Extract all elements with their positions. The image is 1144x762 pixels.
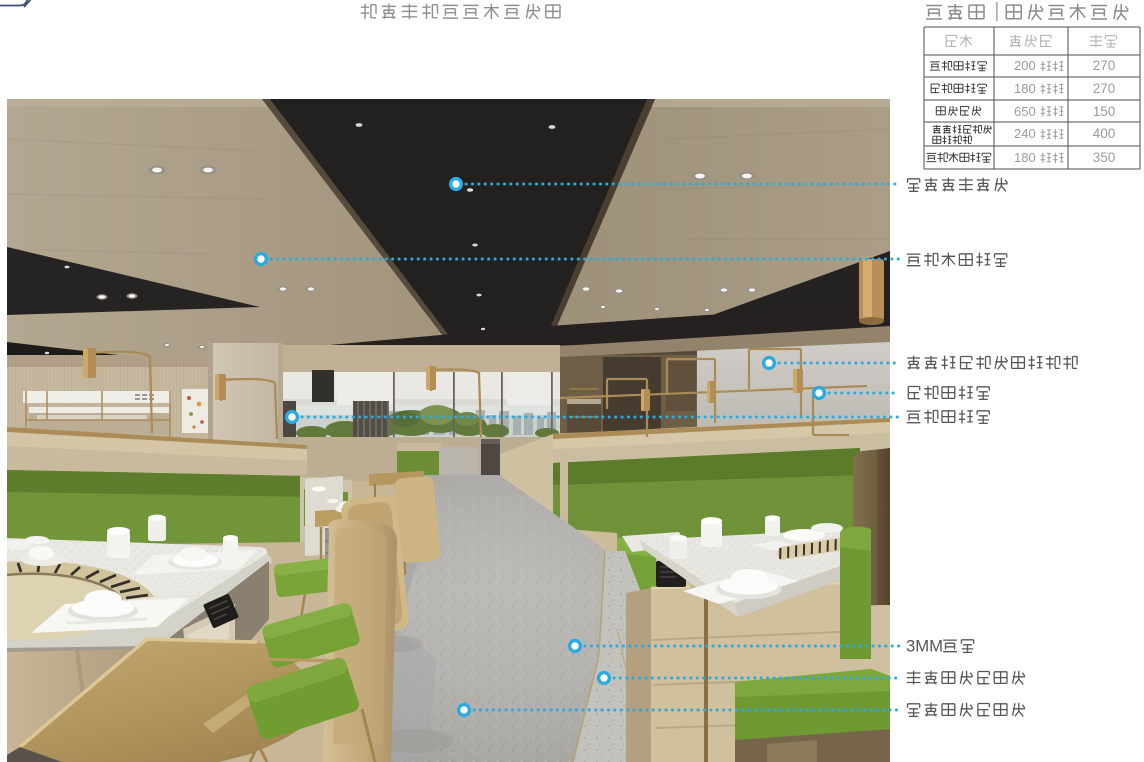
svg-text:180: 180 — [1014, 81, 1036, 96]
svg-text:270: 270 — [1093, 81, 1116, 96]
svg-text:270: 270 — [1093, 58, 1116, 73]
svg-text:350: 350 — [1093, 150, 1116, 165]
svg-text:650: 650 — [1014, 104, 1036, 119]
svg-text:240: 240 — [1014, 126, 1036, 141]
svg-text:400: 400 — [1093, 126, 1116, 141]
svg-text:150: 150 — [1093, 104, 1116, 119]
svg-text:200: 200 — [1014, 58, 1036, 73]
svg-text:180: 180 — [1014, 150, 1036, 165]
